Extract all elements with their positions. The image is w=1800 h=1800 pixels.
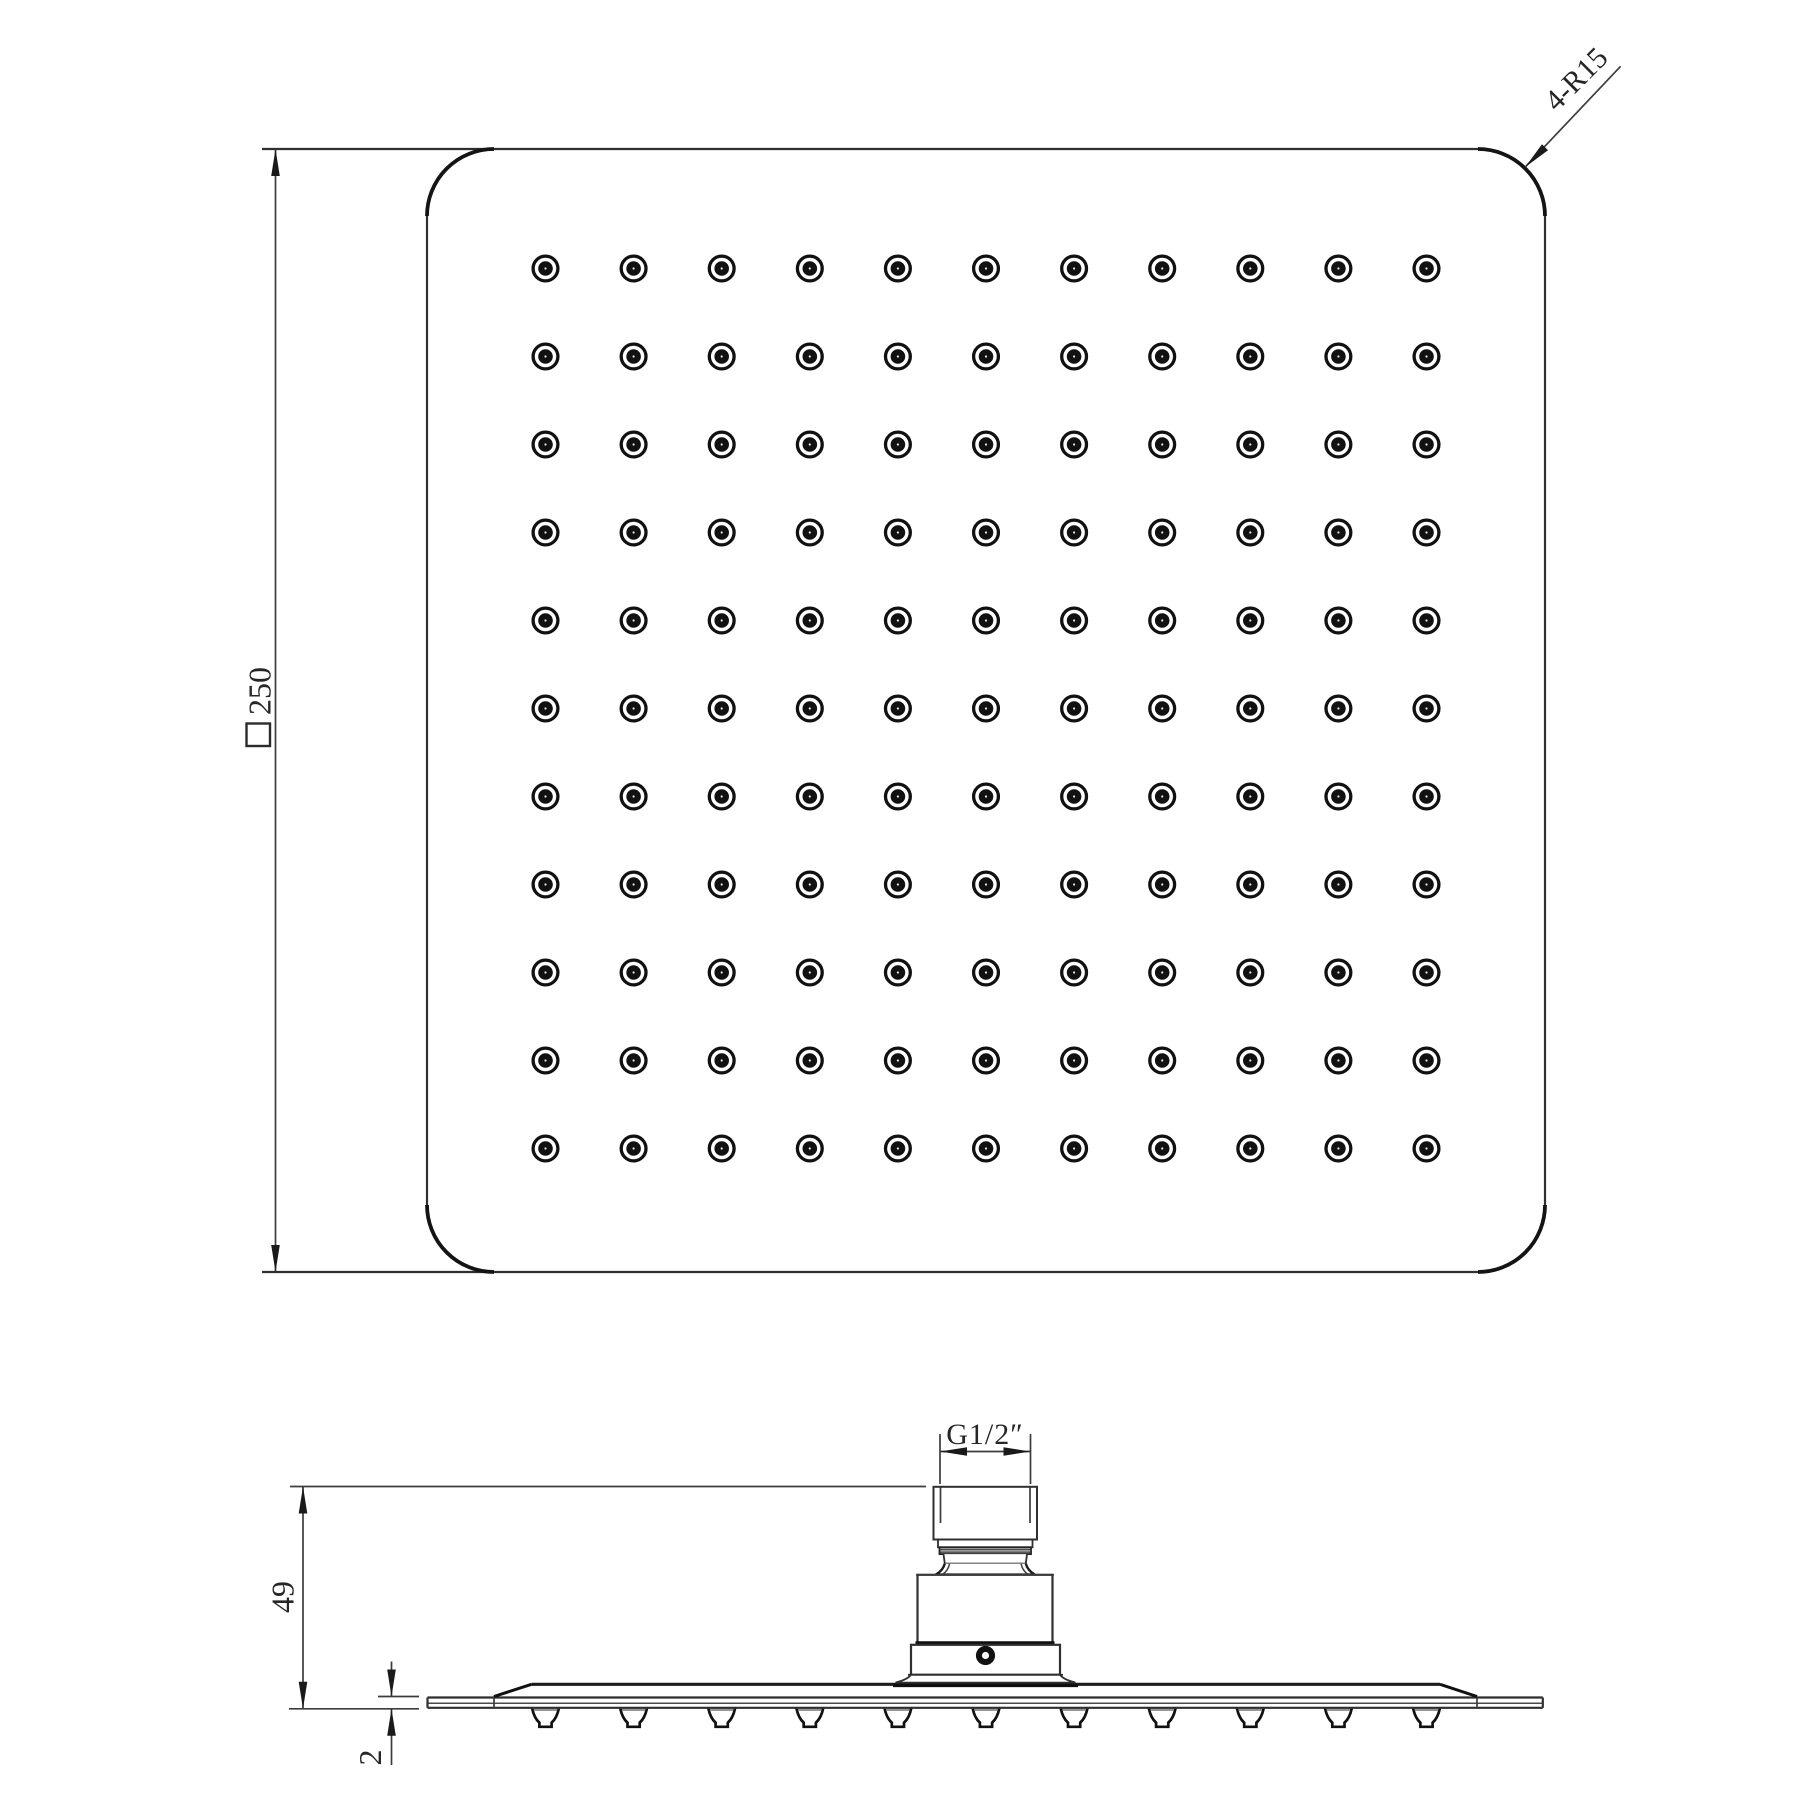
svg-text:G1/2″: G1/2″ [946,1418,1024,1451]
svg-text:250: 250 [242,667,278,715]
svg-text:2: 2 [352,1750,388,1766]
svg-text:49: 49 [265,1581,301,1613]
